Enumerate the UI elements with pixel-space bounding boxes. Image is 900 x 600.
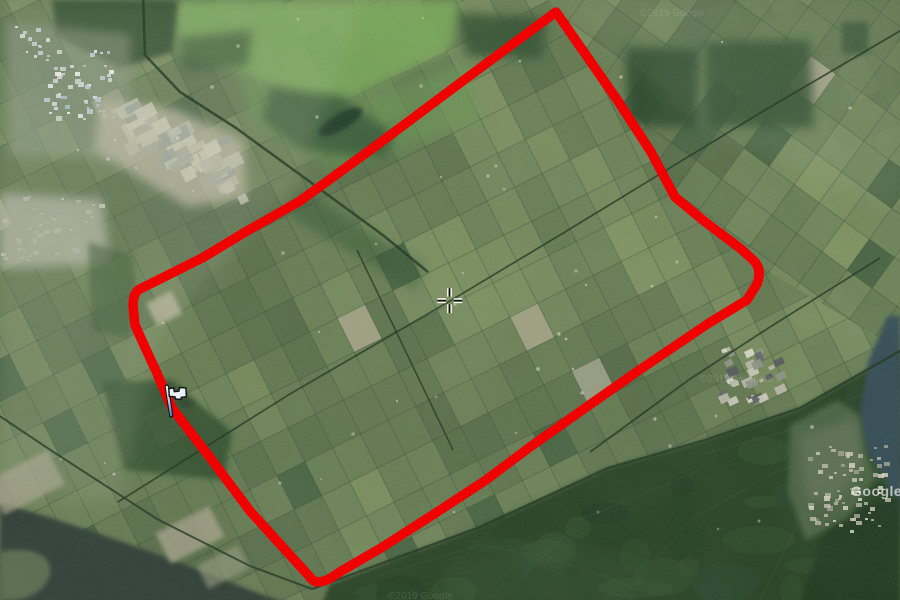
svg-text:©2019 Google: ©2019 Google	[388, 591, 453, 600]
svg-text:©2019 Aerodata: ©2019 Aerodata	[700, 374, 773, 385]
svg-text:Google: Google	[851, 483, 900, 499]
svg-text:©2019 Google: ©2019 Google	[640, 8, 705, 19]
